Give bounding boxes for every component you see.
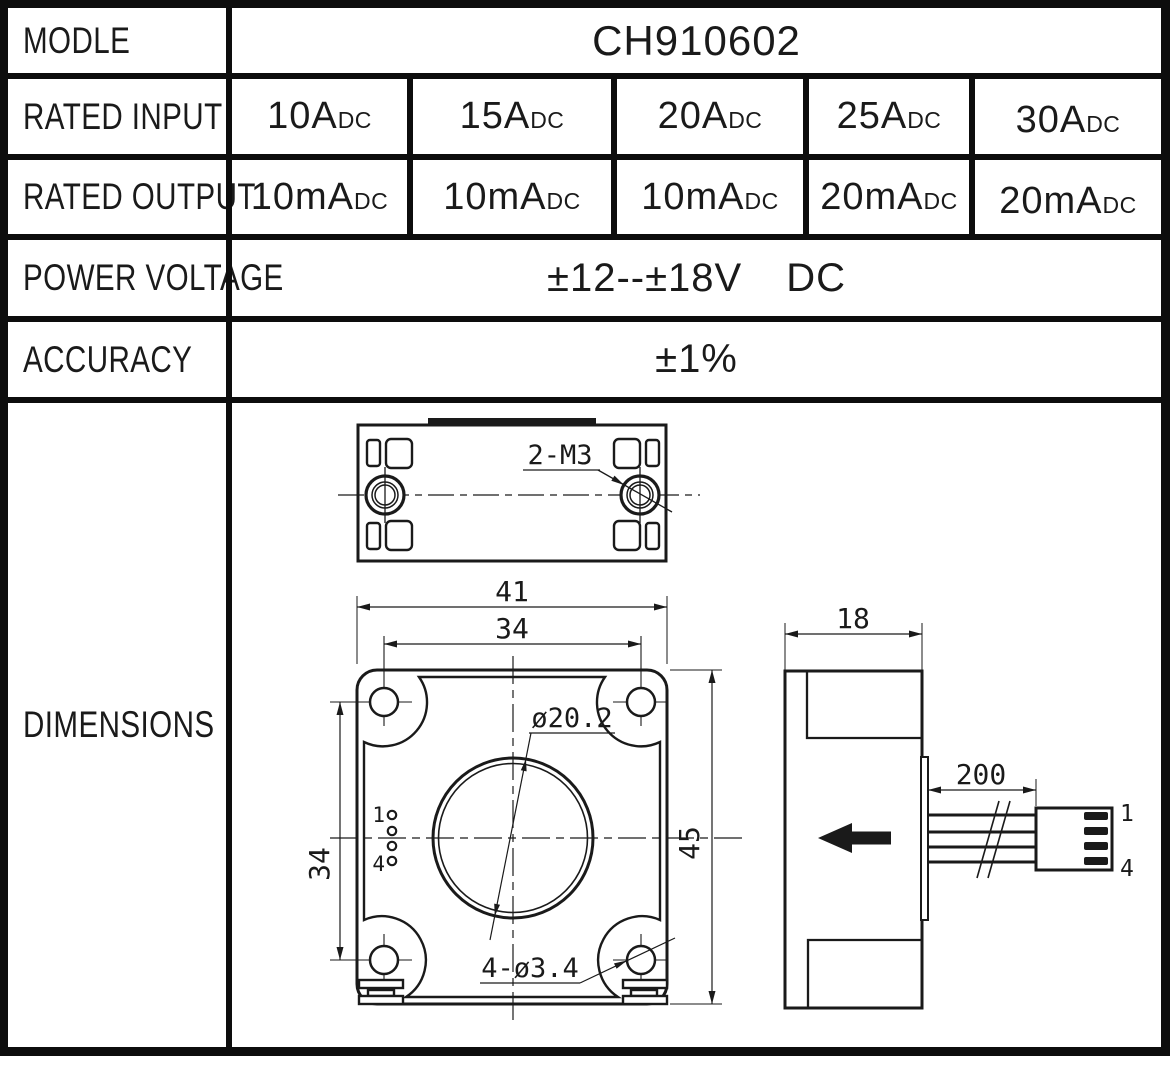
accuracy-label: ACCURACY bbox=[23, 339, 192, 381]
rated-input-unit: DC bbox=[907, 107, 941, 133]
accuracy-label-cell: ACCURACY bbox=[8, 322, 235, 397]
accuracy-value-cell: ±1% bbox=[232, 322, 1161, 397]
connector-pin-last-label: 4 bbox=[1120, 856, 1134, 882]
model-row-label-cell: MODLE bbox=[8, 8, 235, 73]
rated-input-cell: 20ADC bbox=[617, 79, 803, 154]
rated-input-value: 20A bbox=[658, 95, 729, 137]
rated-output-value: 10mA bbox=[641, 176, 744, 218]
row-separator bbox=[0, 234, 1170, 240]
rated-output-cell: 10mADC bbox=[617, 160, 803, 234]
rated-output-unit: DC bbox=[1103, 192, 1137, 218]
rated-output-value: 20mA bbox=[999, 180, 1102, 222]
model-label: MODLE bbox=[23, 20, 130, 62]
rated-output-label: RATED OUTPUT bbox=[23, 176, 256, 218]
rated-input-cell: 15ADC bbox=[413, 79, 611, 154]
power-voltage-value: ±12--±18V bbox=[547, 256, 742, 300]
rated-output-cell: 10mADC bbox=[232, 160, 407, 234]
column-separator bbox=[611, 73, 617, 240]
dimensions-label-cell: DIMENSIONS bbox=[8, 403, 235, 1047]
table-border-bottom bbox=[0, 1047, 1170, 1056]
svg-text:34: 34 bbox=[495, 612, 529, 645]
accuracy-value: ±1% bbox=[655, 337, 738, 382]
column-separator bbox=[803, 73, 809, 240]
svg-text:45: 45 bbox=[673, 826, 706, 860]
rated-output-unit: DC bbox=[354, 188, 388, 214]
rated-input-value: 15A bbox=[460, 95, 531, 137]
rated-input-cell: 30ADC bbox=[975, 83, 1161, 158]
side-view: 1 4 18 200 bbox=[785, 602, 1134, 1008]
model-value: CH910602 bbox=[592, 17, 801, 65]
rated-input-unit: DC bbox=[1086, 111, 1120, 137]
power-voltage-label-cell: POWER VOLTAGE bbox=[8, 240, 235, 316]
row-separator bbox=[0, 316, 1170, 322]
row-separator bbox=[0, 397, 1170, 403]
rated-output-unit: DC bbox=[745, 188, 779, 214]
rated-input-cell: 10ADC bbox=[232, 79, 407, 154]
table-border-top bbox=[0, 0, 1170, 8]
power-voltage-value-cell: ±12--±18VDC bbox=[232, 240, 1161, 316]
pin-last-label: 4 bbox=[372, 852, 385, 876]
rated-input-label-cell: RATED INPUT bbox=[8, 79, 235, 154]
dim-height-outer: 45 bbox=[670, 670, 722, 1004]
rated-input-value: 25A bbox=[837, 95, 908, 137]
svg-text:200: 200 bbox=[956, 758, 1007, 791]
label-column-separator bbox=[226, 0, 232, 1056]
rated-output-cell: 10mADC bbox=[413, 160, 611, 234]
rated-output-value: 10mA bbox=[443, 176, 546, 218]
rated-output-label-cell: RATED OUTPUT bbox=[8, 160, 235, 234]
dimensions-drawing: 2-M3 bbox=[232, 403, 1161, 1047]
rated-input-unit: DC bbox=[530, 107, 564, 133]
model-value-cell: CH910602 bbox=[232, 8, 1161, 73]
pin-first-label: 1 bbox=[372, 803, 385, 827]
rated-output-cell: 20mADC bbox=[809, 160, 969, 234]
svg-text:ø20.2: ø20.2 bbox=[531, 703, 612, 734]
rated-input-label: RATED INPUT bbox=[23, 96, 223, 138]
rated-output-value: 10mA bbox=[251, 176, 354, 218]
dim-cable-length: 200 bbox=[928, 758, 1036, 806]
rated-input-unit: DC bbox=[728, 107, 762, 133]
column-separator bbox=[407, 73, 413, 240]
svg-text:18: 18 bbox=[836, 602, 870, 635]
rated-input-cell: 25ADC bbox=[809, 79, 969, 154]
rated-input-unit: DC bbox=[338, 107, 372, 133]
dim-hole-spacing-height: 34 bbox=[303, 702, 344, 960]
cable-wires bbox=[928, 801, 1036, 878]
thread-callout-label: 2-M3 bbox=[527, 440, 592, 471]
dimensions-label: DIMENSIONS bbox=[23, 704, 214, 746]
connector-pin-first-label: 1 bbox=[1120, 801, 1134, 827]
row-separator bbox=[0, 154, 1170, 160]
rated-output-unit: DC bbox=[924, 188, 958, 214]
top-view: 2-M3 bbox=[338, 418, 700, 561]
rated-input-value: 30A bbox=[1016, 99, 1087, 141]
svg-text:4-ø3.4: 4-ø3.4 bbox=[481, 953, 579, 984]
rated-input-value: 10A bbox=[267, 95, 338, 137]
column-separator bbox=[969, 73, 975, 240]
rated-output-value: 20mA bbox=[820, 176, 923, 218]
row-separator bbox=[0, 73, 1170, 79]
dim-depth: 18 bbox=[785, 602, 922, 670]
dim-hole-spacing-width: 34 bbox=[384, 612, 641, 648]
connector: 1 4 bbox=[1036, 801, 1134, 882]
power-voltage-unit: DC bbox=[786, 256, 846, 300]
rated-output-unit: DC bbox=[547, 188, 581, 214]
svg-text:41: 41 bbox=[495, 575, 529, 608]
front-view: 1 4 41 bbox=[303, 575, 746, 1024]
svg-text:34: 34 bbox=[303, 847, 336, 881]
datasheet-page: MODLE CH910602 RATED INPUT 10ADC 15ADC 2… bbox=[0, 0, 1170, 1067]
rated-output-cell: 20mADC bbox=[975, 164, 1161, 238]
